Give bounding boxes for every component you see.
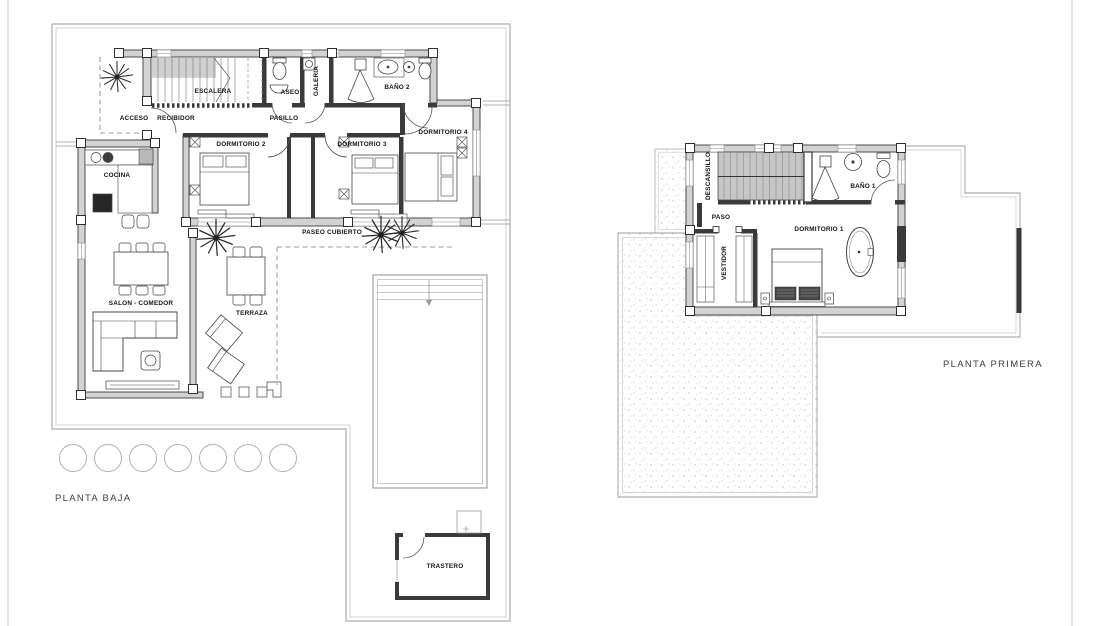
room-label-cocina: COCINA [104, 173, 130, 179]
room-label-bano-2: BAÑO 2 [384, 85, 409, 91]
room-label-dormitorio-2: DORMITORIO 2 [216, 142, 265, 148]
labels: ESCALERA ASEO GALERIA BAÑO 2 ACCESO RECI… [0, 0, 1110, 626]
floor-plan-sheet: ESCALERA ASEO GALERIA BAÑO 2 ACCESO RECI… [0, 0, 1110, 626]
room-label-pasillo: PASILLO [270, 116, 299, 122]
room-label-dormitorio-3: DORMITORIO 3 [337, 142, 386, 148]
room-label-aseo: ASEO [281, 90, 300, 96]
room-label-recibidor: RECIBIDOR [157, 116, 195, 122]
room-label-paso: PASO [712, 215, 730, 221]
room-label-galeria: GALERIA [314, 66, 320, 96]
room-label-vestidor: VESTIDOR [722, 246, 728, 280]
room-label-salon-comedor: SALON - COMEDOR [109, 301, 173, 307]
room-label-dormitorio-4: DORMITORIO 4 [418, 130, 467, 136]
room-label-bano-1: BAÑO 1 [850, 184, 875, 190]
room-label-acceso: ACCESO [120, 116, 149, 122]
room-label-escalera: ESCALERA [195, 89, 232, 95]
floor-title-planta-primera: PLANTA PRIMERA [943, 360, 1043, 370]
room-label-terraza: TERRAZA [236, 311, 268, 317]
room-label-paseo-cubierto: PASEO CUBIERTO [302, 230, 362, 236]
room-label-descansillo: DESCANSILLO [706, 152, 712, 200]
room-label-dormitorio-1: DORMITORIO 1 [794, 227, 843, 233]
room-label-trastero: TRASTERO [427, 564, 464, 570]
floor-title-planta-baja: PLANTA BAJA [55, 494, 131, 504]
